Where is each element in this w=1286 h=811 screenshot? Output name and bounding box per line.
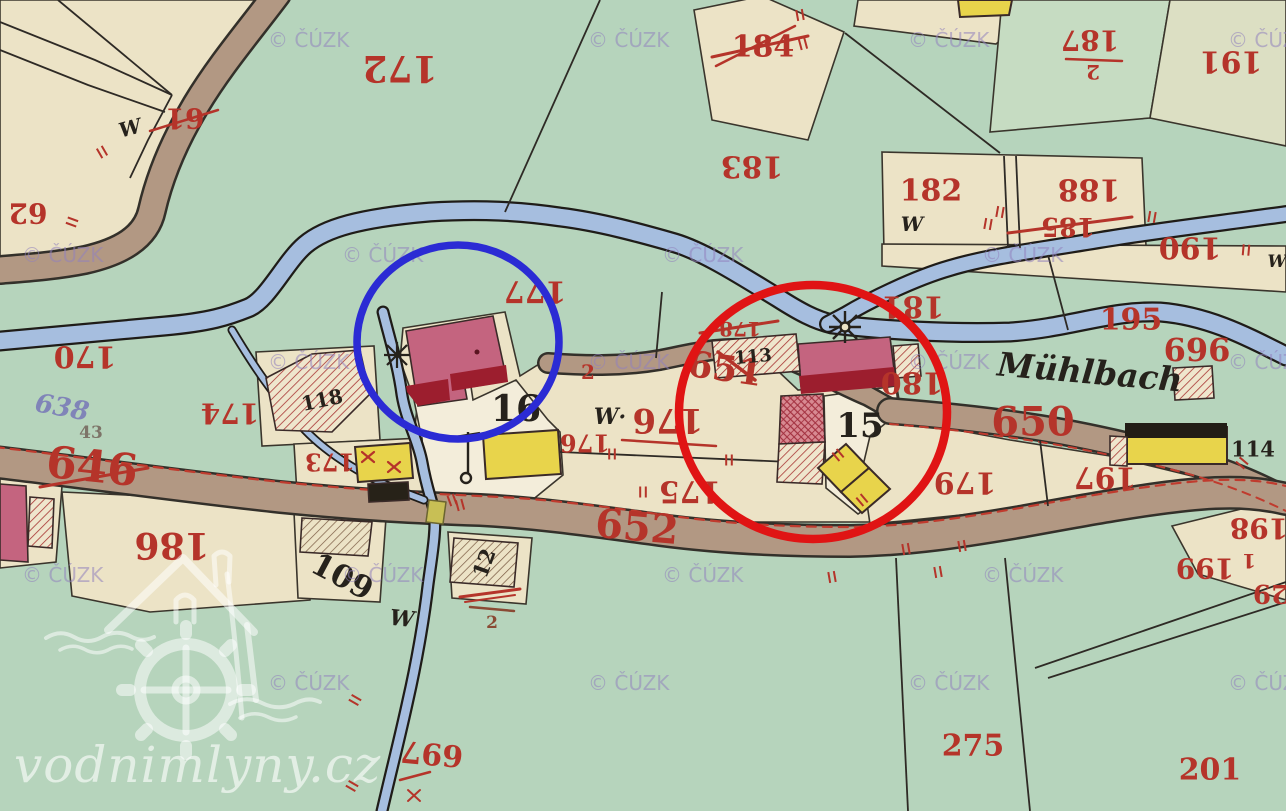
cuzk-watermark: © ČÚZK bbox=[662, 243, 744, 267]
parcel-label-201: 201 bbox=[1179, 753, 1242, 788]
parcel-label-188: 188 bbox=[1058, 172, 1121, 207]
barn-hatched-lower bbox=[777, 442, 825, 484]
parcel-label-2: 2 bbox=[486, 613, 498, 633]
parcel-label-62: 62 bbox=[9, 197, 48, 230]
logo-waterwheel-gear-icon bbox=[122, 626, 250, 754]
cadastral-map-viewport[interactable]: 1721841872191616218318218818519017017718… bbox=[0, 0, 1286, 811]
wooden-building-below-16 bbox=[483, 430, 561, 479]
parcel-label-176: 176 bbox=[560, 429, 610, 458]
parcel-label-187: 187 bbox=[1061, 24, 1119, 57]
cuzk-watermark: © ČÚZK bbox=[22, 243, 104, 267]
cuzk-watermark: © ČÚZK bbox=[22, 563, 104, 587]
parcel-label-197: 197 bbox=[1074, 460, 1137, 495]
cuzk-watermark: © ČÚZK bbox=[588, 350, 670, 374]
parcel-label-W: W bbox=[901, 212, 926, 236]
cuzk-watermark: © ČÚZK bbox=[1228, 28, 1286, 52]
barn-crosshatched-upper bbox=[779, 394, 825, 444]
parcel-187-2 bbox=[990, 0, 1170, 132]
race-road-crossing bbox=[426, 500, 446, 524]
cuzk-watermark: © ČÚZK bbox=[1228, 671, 1286, 695]
parcel-label-190: 190 bbox=[1159, 230, 1222, 265]
cuzk-watermark: © ČÚZK bbox=[268, 28, 350, 52]
parcel-label-646: 646 bbox=[44, 437, 141, 497]
parcel-label-W·: W· bbox=[594, 404, 626, 430]
hatched-annex-left-mill bbox=[28, 497, 54, 548]
wooden-building-173 bbox=[355, 443, 413, 482]
parcel-label-183: 183 bbox=[721, 149, 784, 184]
parcel-label-198: 198 bbox=[1230, 512, 1286, 545]
black-outbuilding-173 bbox=[368, 482, 409, 502]
cuzk-watermark: © ČÚZK bbox=[982, 563, 1064, 587]
parcel-label-W: W bbox=[1267, 252, 1286, 272]
parcel-label-199: 199 bbox=[1176, 552, 1234, 585]
water-wheel-star-16 bbox=[384, 342, 410, 368]
cuzk-watermark: © ČÚZK bbox=[342, 563, 424, 587]
cadastral-map-canvas[interactable]: 1721841872191616218318218818519017017718… bbox=[0, 0, 1286, 811]
parcel-label-2: 2 bbox=[1086, 60, 1100, 84]
cuzk-watermark: © ČÚZK bbox=[268, 350, 350, 374]
parcel-label-1: 1 bbox=[1242, 549, 1256, 573]
cuzk-watermark: © ČÚZK bbox=[908, 28, 990, 52]
parcel-label-179: 179 bbox=[934, 465, 997, 500]
cuzk-watermark: © ČÚZK bbox=[982, 243, 1064, 267]
parcel-label-184: 184 bbox=[732, 30, 795, 65]
parcel-label-195: 195 bbox=[1100, 303, 1163, 338]
masonry-building-left-edge bbox=[0, 484, 28, 562]
wooden-building-top-edge bbox=[958, 0, 1012, 17]
parcel-label-182: 182 bbox=[900, 174, 963, 209]
cuzk-watermark: © ČÚZK bbox=[1228, 350, 1286, 374]
parcel-label-650: 650 bbox=[991, 399, 1075, 446]
parcel-label-173: 173 bbox=[305, 448, 355, 477]
parcel-label-652: 652 bbox=[593, 500, 680, 554]
parcel-label-174: 174 bbox=[201, 397, 259, 430]
hatched-building-109 bbox=[300, 518, 372, 556]
cuzk-watermark: © ČÚZK bbox=[908, 671, 990, 695]
cuzk-watermark: © ČÚZK bbox=[662, 563, 744, 587]
parcel-label-185: 185 bbox=[1041, 211, 1095, 241]
parcel-label-172: 172 bbox=[362, 47, 437, 89]
parcel-label-61: 61 bbox=[166, 102, 205, 135]
parcel-label-114: 114 bbox=[1231, 437, 1275, 462]
parcel-label-697: 697 bbox=[399, 733, 464, 773]
parcel-label-275: 275 bbox=[942, 729, 1005, 764]
cuzk-watermark: © ČÚZK bbox=[588, 28, 670, 52]
cuzk-watermark: © ČÚZK bbox=[908, 350, 990, 374]
cuzk-watermark: © ČÚZK bbox=[268, 671, 350, 695]
water-wheel-star-15 bbox=[829, 311, 861, 343]
parcel-label-170: 170 bbox=[54, 339, 117, 374]
parcel-label-176: 176 bbox=[633, 400, 704, 440]
parcel-label-29: 29 bbox=[1253, 578, 1286, 608]
parcel-label-113: 113 bbox=[733, 345, 772, 369]
parcel-label-186: 186 bbox=[134, 524, 209, 566]
cuzk-watermark: © ČÚZK bbox=[588, 671, 670, 695]
logo-text: vodnimlyny.cz bbox=[14, 736, 381, 794]
parcel-label-15: 15 bbox=[836, 406, 883, 446]
